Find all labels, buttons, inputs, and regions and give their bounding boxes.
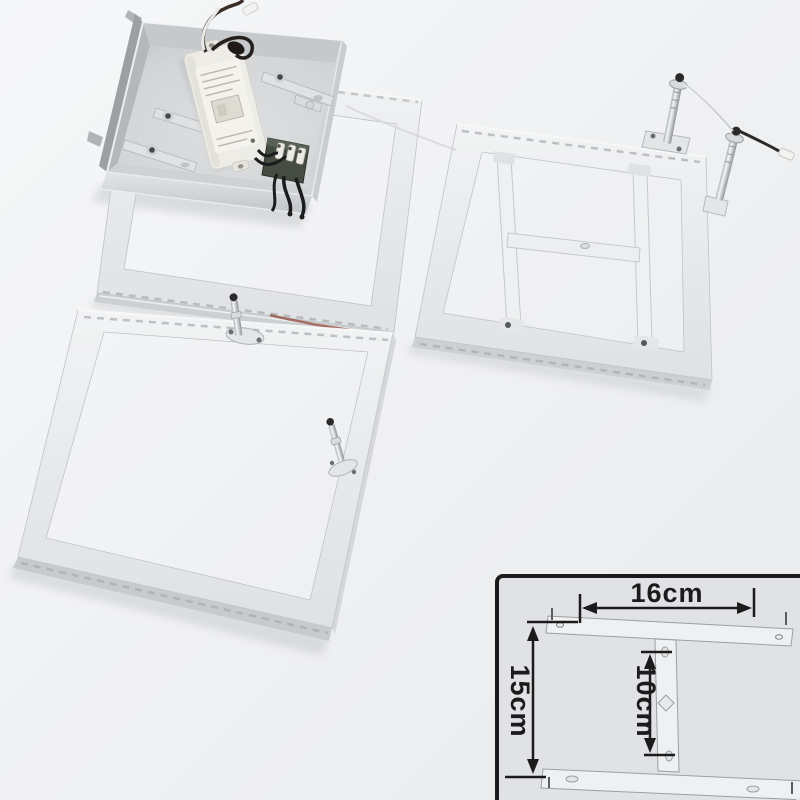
inset-diagram: 16cm 15cm 10cm [497,576,800,800]
product-photo: 16cm 15cm 10cm [0,0,800,800]
dim-width-label: 16cm [630,578,703,608]
photo-canvas: 16cm 15cm 10cm [0,0,800,800]
dim-height-label: 15cm [505,664,535,737]
dim-inner-label: 10cm [631,664,661,737]
